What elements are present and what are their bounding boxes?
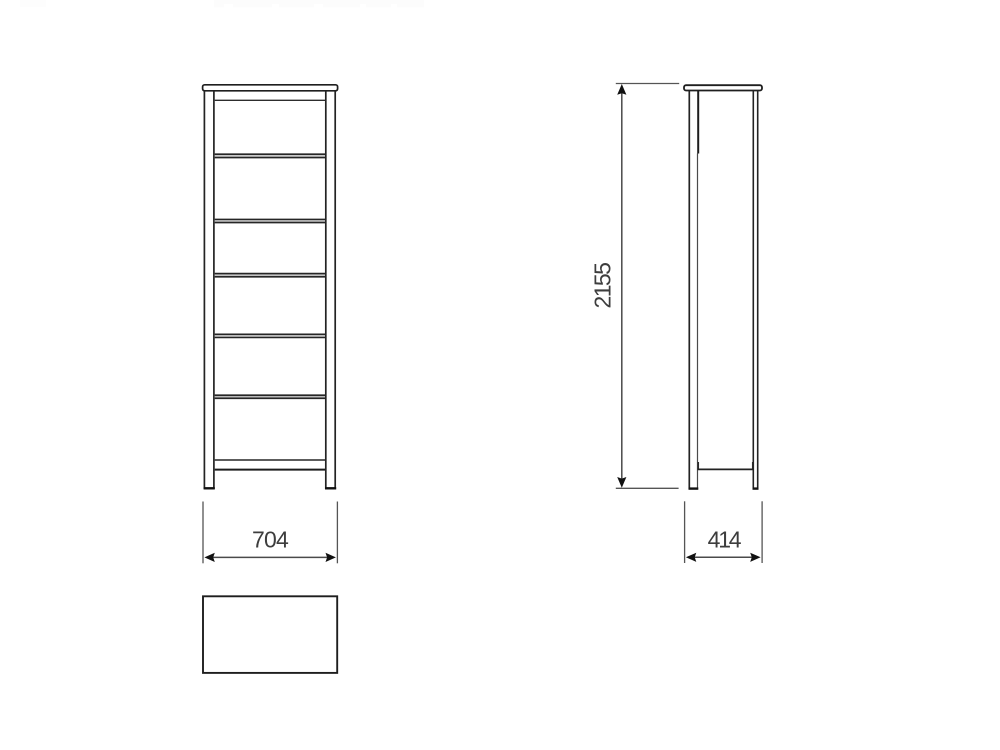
svg-text:704: 704: [252, 527, 289, 553]
svg-text:2155: 2155: [590, 263, 616, 309]
svg-text:414: 414: [708, 527, 742, 553]
